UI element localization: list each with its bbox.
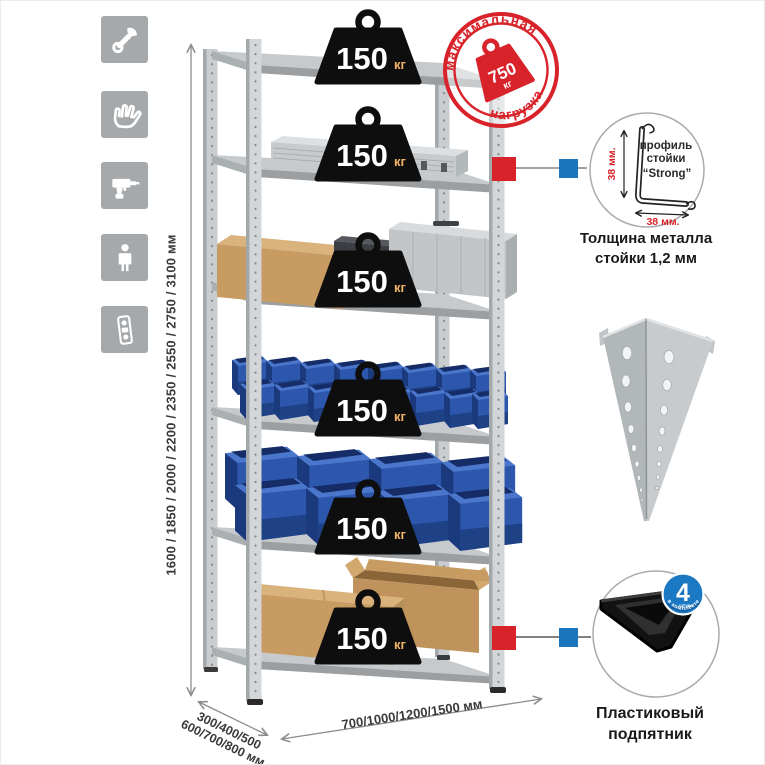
shelf-weight-badge: 150 кг [308, 589, 428, 667]
weight-unit: кг [394, 409, 407, 424]
weight-unit: кг [394, 154, 407, 169]
sidebar-tile-level [101, 306, 148, 353]
level-icon [106, 311, 144, 349]
profile-dim-horizontal: 38 мм. [646, 216, 679, 228]
profile-dim-vertical: 38 мм. [606, 147, 618, 180]
weight-unit: кг [394, 637, 407, 652]
post-profile-image [599, 319, 715, 521]
height-dimension-label: 1600 / 1850 / 2000 / 2200 / 2350 / 2550 … [164, 234, 179, 575]
weight-value: 150 [336, 41, 388, 76]
weight-value: 150 [336, 264, 388, 299]
weight-value: 150 [336, 621, 388, 656]
shelf-weight-badge: 150 кг [308, 479, 428, 557]
sidebar-tile-gloves [101, 91, 148, 138]
foot-callout-circle: 4 штуки в комплекте [589, 567, 725, 703]
weight-unit: кг [394, 57, 407, 72]
set-count-badge: 4 штуки в комплекте [663, 574, 704, 615]
shelf-weight-badge: 150 кг [308, 106, 428, 184]
profile-callout-circle: 38 мм. 38 мм. профиль стойки “Strong” [586, 109, 708, 231]
shelf-weight-badge: 150 кг [308, 361, 428, 439]
profile-label: профиль [640, 140, 693, 152]
weight-value: 150 [336, 393, 388, 428]
weight-unit: кг [394, 280, 407, 295]
gloves-icon [106, 96, 144, 134]
weight-value: 150 [336, 511, 388, 546]
person-icon [106, 239, 144, 277]
shelf-weight-badge: 150 кг [308, 232, 428, 310]
sidebar-tile-tools [101, 16, 148, 63]
wrench-icon [106, 21, 144, 59]
weight-value: 150 [336, 138, 388, 173]
shelf-weight-badge: 150 кг [308, 9, 428, 87]
max-load-stamp: максимальная нагрузка 750 кг [438, 7, 564, 133]
sidebar-tile-person [101, 234, 148, 281]
shelving-product-infographic: 150 кг 150 кг 150 кг 150 кг 150 [0, 0, 765, 765]
drill-icon [106, 167, 144, 205]
profile-label: стойки [647, 153, 686, 165]
sidebar-tile-drill [101, 162, 148, 209]
thickness-caption: Толщина металла стойки 1,2 мм [580, 229, 712, 268]
weight-unit: кг [394, 527, 407, 542]
plastic-foot-caption: Пластиковый подпятник [596, 704, 704, 746]
profile-label: “Strong” [643, 168, 692, 180]
